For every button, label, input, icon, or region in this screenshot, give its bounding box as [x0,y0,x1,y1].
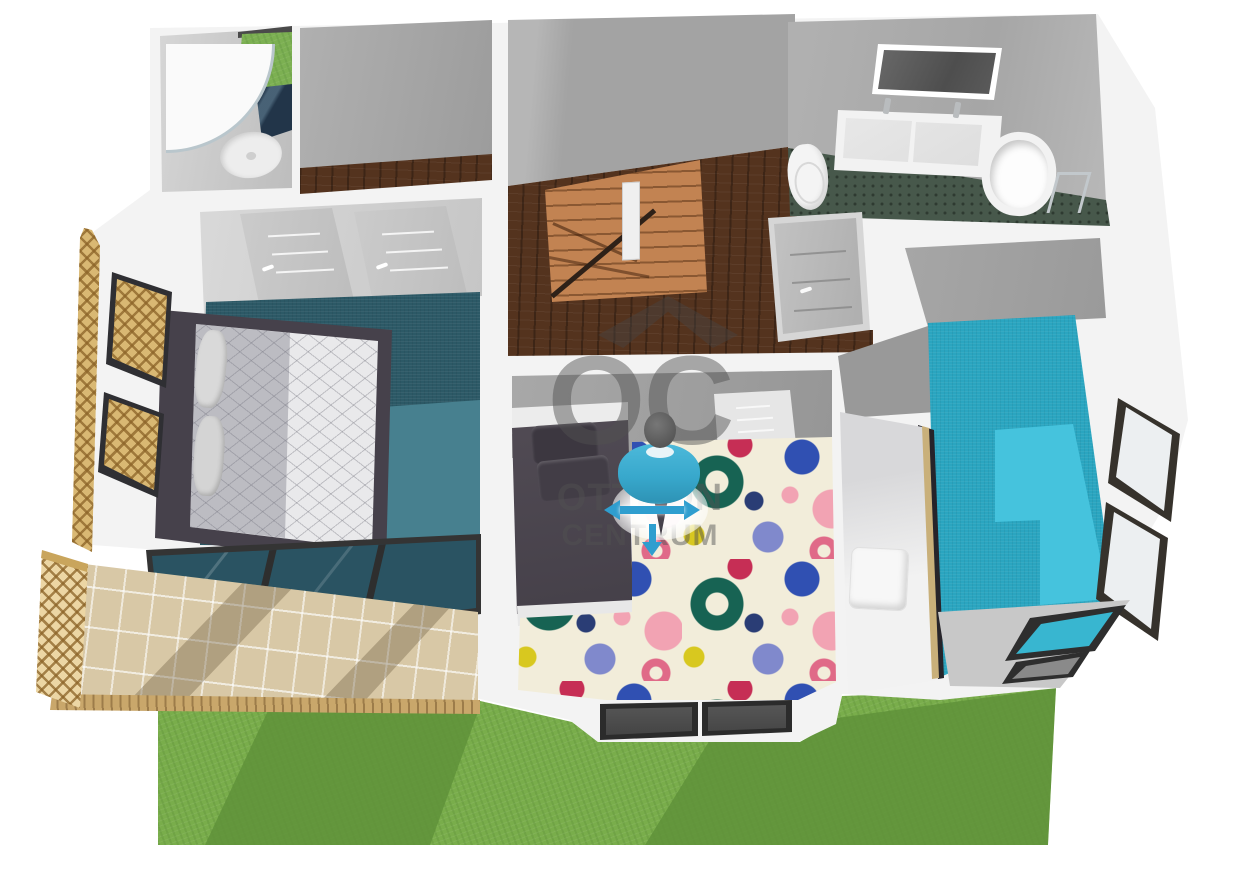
door-handle-icon [376,262,389,270]
person-head[interactable] [644,412,676,448]
door-panel-line [382,231,434,236]
door-handle-icon [800,286,813,294]
door-panel-line [792,278,850,284]
door-panel-line [794,306,852,312]
floorplan-3d-view: OC OTTHON CENTRUM [0,0,1249,873]
door-handle-icon [262,264,275,272]
right-bed-pillow [848,547,909,612]
move-horizontal-bar[interactable] [620,506,684,514]
mirror [876,46,998,96]
move-down-arrow[interactable] [642,542,662,556]
stair-newel-post [622,182,640,261]
door-panel-line [272,251,328,256]
toilet-seat-line [793,160,827,205]
bay-window-frames [598,698,794,744]
door-panel-line [268,233,320,238]
door-panel-line [386,249,442,254]
dresser-drawer-line [738,429,774,434]
bathtub-basin [987,137,1052,211]
right-room-wall-top [905,238,1106,327]
room-top-wall [300,20,492,168]
person-marker[interactable] [600,400,720,565]
door-panel-line [790,250,846,256]
door-panel-line [276,268,334,273]
move-vertical-bar[interactable] [649,524,656,544]
dresser-drawer-line [737,417,773,422]
door-panel-line [390,266,448,271]
dresser-drawer-line [736,405,770,409]
shower-drain-icon [246,151,257,160]
